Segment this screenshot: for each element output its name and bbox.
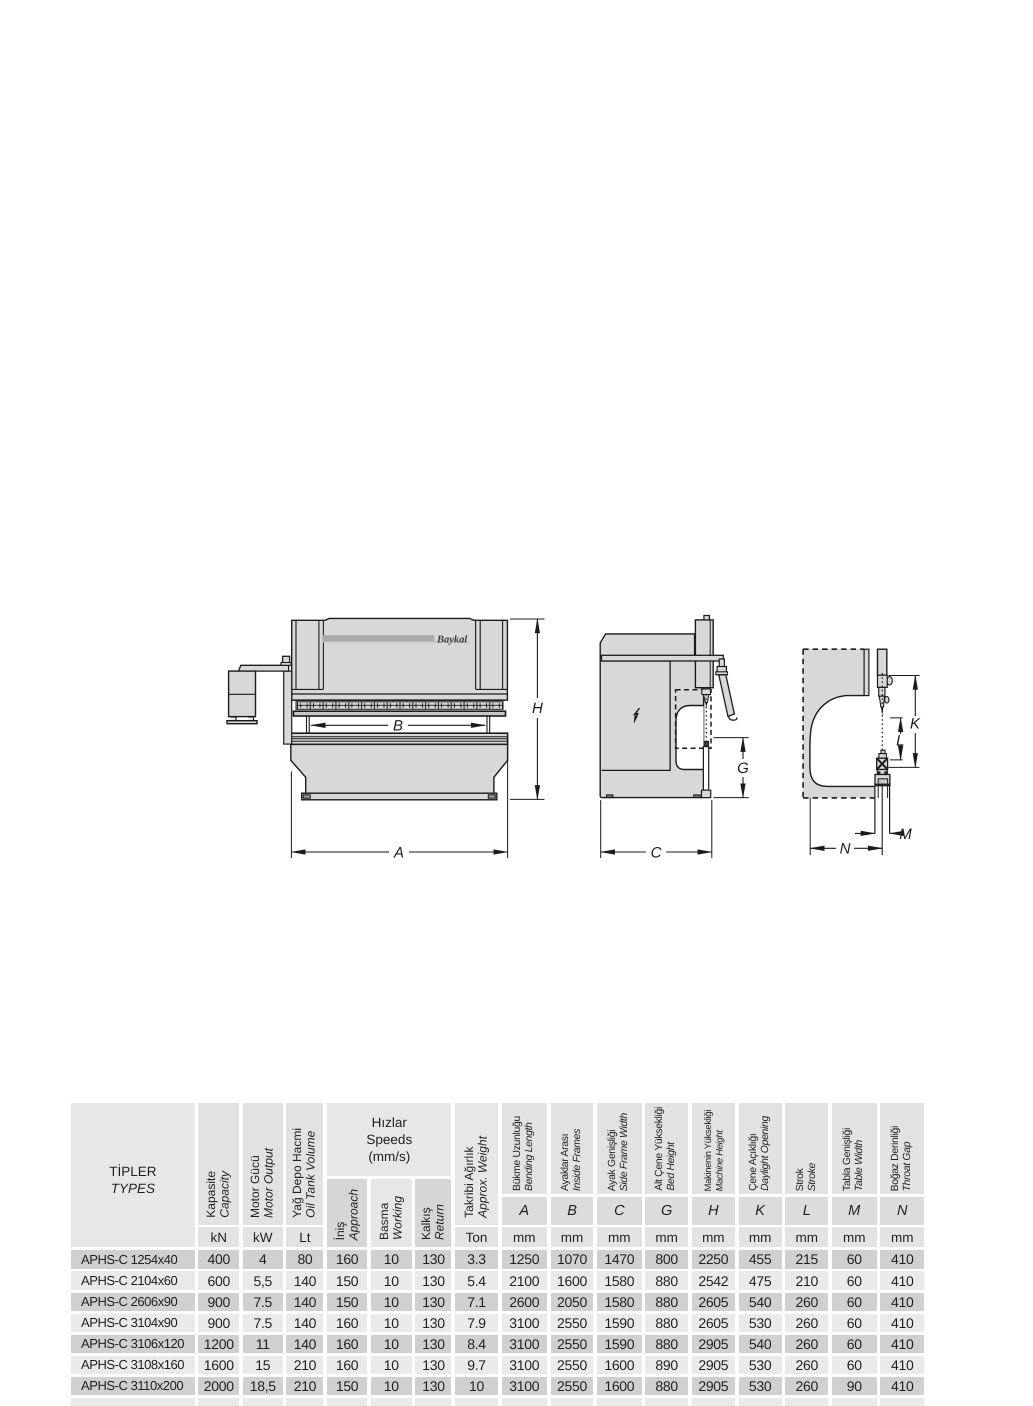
- svg-text:A: A: [393, 845, 404, 862]
- svg-text:G: G: [737, 760, 749, 777]
- svg-text:N: N: [840, 841, 851, 858]
- svg-text:H: H: [532, 700, 543, 717]
- svg-text:Baykal: Baykal: [436, 635, 467, 646]
- svg-text:M: M: [899, 826, 912, 843]
- svg-text:C: C: [651, 845, 662, 862]
- svg-text:B: B: [393, 718, 403, 735]
- svg-text:K: K: [910, 716, 921, 733]
- svg-text:L: L: [896, 733, 904, 750]
